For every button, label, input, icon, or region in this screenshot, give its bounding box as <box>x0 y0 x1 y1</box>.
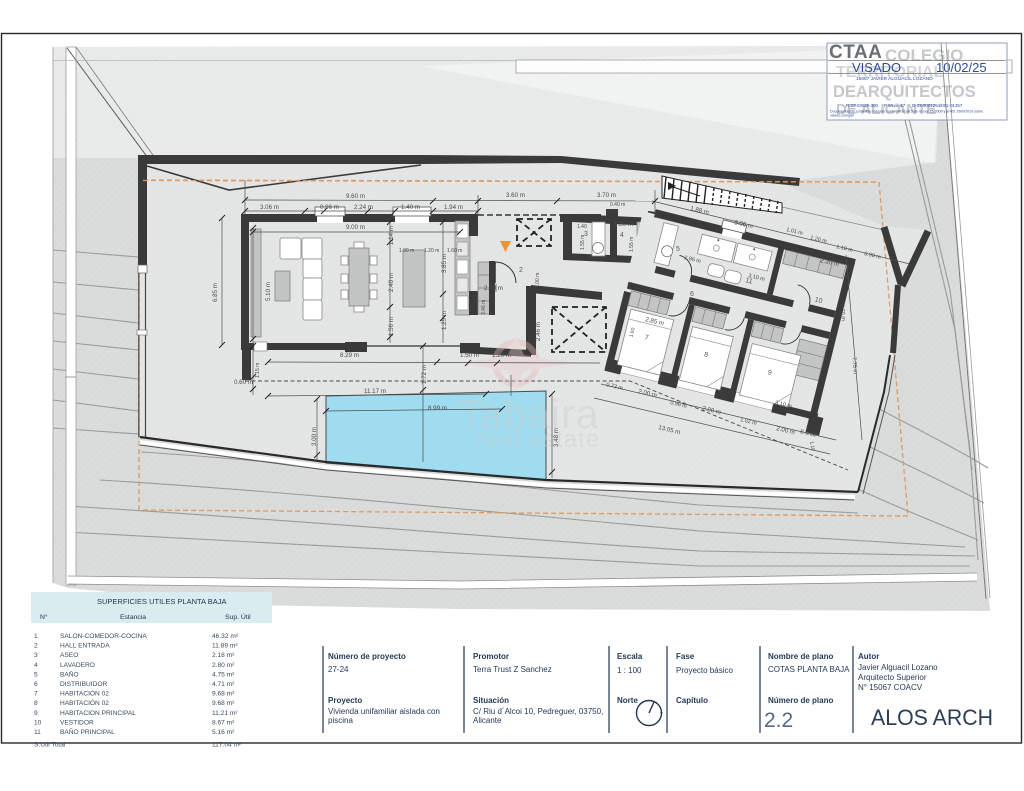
svg-text:N° 15067 COACV: N° 15067 COACV <box>858 683 923 692</box>
svg-text:Capítulo: Capítulo <box>676 696 708 705</box>
svg-text:11: 11 <box>34 729 41 736</box>
svg-text:DEARQUITECTOS: DEARQUITECTOS <box>833 83 976 101</box>
svg-text:8.99 m: 8.99 m <box>428 405 447 412</box>
svg-text:1: 1 <box>34 633 38 640</box>
svg-text:real estate: real estate <box>477 426 600 453</box>
svg-text:3: 3 <box>584 231 588 238</box>
svg-text:Vivienda unifamiliar aislada c: Vivienda unifamiliar aislada con <box>328 707 440 716</box>
svg-text:4: 4 <box>620 232 624 239</box>
svg-text:visado colegial: visado colegial <box>830 114 854 118</box>
svg-text:1.56 m: 1.56 m <box>388 317 395 336</box>
svg-text:8: 8 <box>34 700 38 707</box>
svg-text:11.17 m: 11.17 m <box>364 388 386 395</box>
svg-text:4.71 m²: 4.71 m² <box>212 681 235 688</box>
svg-text:piscina: piscina <box>328 716 353 725</box>
svg-text:9.68 m²: 9.68 m² <box>212 691 235 698</box>
svg-text:Terra Trust Z Sanchez: Terra Trust Z Sanchez <box>473 665 552 674</box>
svg-text:0.60 m: 0.60 m <box>234 379 253 386</box>
svg-text:Situación: Situación <box>473 696 509 705</box>
svg-text:10: 10 <box>34 719 42 726</box>
svg-text:HABITACIÓN 02: HABITACIÓN 02 <box>60 689 109 698</box>
svg-text:Promotor: Promotor <box>473 652 509 661</box>
svg-text:1.80 m: 1.80 m <box>614 221 633 228</box>
svg-text:1.25 m: 1.25 m <box>441 311 448 330</box>
svg-text:3.70 m: 3.70 m <box>597 192 616 199</box>
svg-text:Arquitecto Superior: Arquitecto Superior <box>858 673 927 682</box>
svg-text:2.40 m: 2.40 m <box>388 273 395 292</box>
svg-text:3.00 m: 3.00 m <box>311 427 318 446</box>
svg-text:Proyecto: Proyecto <box>328 696 362 705</box>
svg-text:3.60 m: 3.60 m <box>506 192 525 199</box>
svg-text:3.48 m: 3.48 m <box>553 428 560 447</box>
svg-text:2.46 m: 2.46 m <box>535 322 542 341</box>
svg-text:HABITACIÓN 02: HABITACIÓN 02 <box>60 698 109 707</box>
svg-text:2.24 m: 2.24 m <box>354 204 373 211</box>
svg-text:P 64 de 47: P 64 de 47 <box>884 103 906 108</box>
svg-text:9.60 m: 9.60 m <box>346 193 365 200</box>
svg-text:SALON-COMEDOR-COCINA: SALON-COMEDOR-COCINA <box>60 633 147 640</box>
svg-text:Sup. Útil: Sup. Útil <box>225 612 251 621</box>
svg-text:R-23-03529-300: R-23-03529-300 <box>846 103 879 108</box>
svg-text:1.20 m: 1.20 m <box>424 248 439 254</box>
svg-text:SUPERFICIES UTILES PLANTA BAJA: SUPERFICIES UTILES PLANTA BAJA <box>97 597 226 606</box>
svg-text:6: 6 <box>690 291 694 298</box>
svg-text:Proyecto básico: Proyecto básico <box>676 666 733 675</box>
svg-text:Fase: Fase <box>676 652 695 661</box>
svg-text:2: 2 <box>34 643 38 650</box>
svg-text:1.60 m: 1.60 m <box>447 248 462 254</box>
svg-text:COTAS PLANTA BAJA: COTAS PLANTA BAJA <box>768 665 850 674</box>
svg-text:2.18 m²: 2.18 m² <box>212 652 235 659</box>
svg-text:2.80 m²: 2.80 m² <box>212 662 235 669</box>
svg-text:8.67 m²: 8.67 m² <box>212 719 235 726</box>
svg-text:1.15 m: 1.15 m <box>255 363 261 378</box>
svg-text:C/ Riu d´Alcoi 10, Pedreguer,: C/ Riu d´Alcoi 10, Pedreguer, 03750, <box>473 707 603 716</box>
svg-text:9: 9 <box>34 710 38 717</box>
svg-text:Nombre de plano: Nombre de plano <box>768 652 833 661</box>
svg-text:4.75 m²: 4.75 m² <box>212 671 235 678</box>
svg-text:HABITACION PRINCIPAL: HABITACION PRINCIPAL <box>60 710 136 717</box>
svg-text:11.89 m²: 11.89 m² <box>212 643 238 650</box>
svg-text:1.50 m: 1.50 m <box>460 352 479 359</box>
svg-text:5.16 m²: 5.16 m² <box>212 729 235 736</box>
svg-text:1.55 m: 1.55 m <box>629 237 635 252</box>
svg-text:1.20 m: 1.20 m <box>492 352 511 359</box>
svg-text:ALOS ARCH: ALOS ARCH <box>871 705 993 730</box>
svg-text:3.06 m: 3.06 m <box>260 204 279 211</box>
svg-text:117.04 m²: 117.04 m² <box>212 742 242 749</box>
svg-text:1.72 m: 1.72 m <box>421 365 428 384</box>
svg-text:Número de proyecto: Número de proyecto <box>328 652 406 661</box>
svg-text:1.40 m: 1.40 m <box>401 204 420 211</box>
svg-text:7: 7 <box>34 691 38 698</box>
svg-text:9.00 m: 9.00 m <box>346 224 365 231</box>
svg-text:N°: N° <box>40 613 48 621</box>
svg-text:3.46 m: 3.46 m <box>481 300 487 315</box>
svg-text:3: 3 <box>34 652 38 659</box>
svg-text:D-23-0001264/001-01257: D-23-0001264/001-01257 <box>912 103 963 108</box>
svg-text:46.32 m²: 46.32 m² <box>212 633 239 640</box>
svg-text:5: 5 <box>676 246 680 253</box>
svg-text:1.14 m: 1.14 m <box>388 226 395 245</box>
svg-text:9.68 m²: 9.68 m² <box>212 700 235 707</box>
svg-text:VESTIDOR: VESTIDOR <box>60 719 94 726</box>
svg-text:2.2: 2.2 <box>764 709 793 732</box>
svg-text:11.21 m²: 11.21 m² <box>212 710 238 717</box>
svg-text:Estancia: Estancia <box>120 614 146 621</box>
svg-text:3.85 m: 3.85 m <box>441 254 448 273</box>
svg-text:VISADO: VISADO <box>852 60 901 75</box>
svg-text:0.96 m: 0.96 m <box>320 204 339 211</box>
svg-text:Escala: Escala <box>617 652 643 661</box>
svg-text:1.00 m: 1.00 m <box>535 273 541 288</box>
svg-text:Javier Alguacil Lozano: Javier Alguacil Lozano <box>858 663 938 672</box>
svg-text:1.40: 1.40 <box>577 224 587 230</box>
svg-text:1 : 100: 1 : 100 <box>617 666 642 675</box>
svg-text:1.90 m: 1.90 m <box>399 248 414 254</box>
svg-text:ASEO: ASEO <box>60 652 78 659</box>
svg-text:2.00 m: 2.00 m <box>484 285 503 292</box>
svg-text:15067 JAVIER ALGUACIL LOZANO: 15067 JAVIER ALGUACIL LOZANO <box>856 76 933 82</box>
svg-text:27-24: 27-24 <box>328 665 349 674</box>
svg-text:5.10 m: 5.10 m <box>265 282 272 301</box>
svg-text:DISTRIBUIDOR: DISTRIBUIDOR <box>60 681 107 688</box>
svg-text:Autor: Autor <box>858 652 879 661</box>
svg-text:6: 6 <box>34 681 38 688</box>
svg-text:1.94 m: 1.94 m <box>444 204 463 211</box>
svg-text:BAÑO: BAÑO <box>60 669 79 678</box>
svg-text:BAÑO PRINCIPAL: BAÑO PRINCIPAL <box>60 727 115 736</box>
svg-text:8.29 m: 8.29 m <box>340 352 359 359</box>
svg-text:4: 4 <box>34 662 38 669</box>
svg-text:HALL ENTRADA: HALL ENTRADA <box>60 643 110 650</box>
svg-text:LAVADERO: LAVADERO <box>60 662 95 669</box>
svg-text:Norte: Norte <box>617 696 638 705</box>
svg-text:Número de plano: Número de plano <box>768 696 833 705</box>
svg-text:0.40 m: 0.40 m <box>610 202 625 208</box>
svg-text:5: 5 <box>34 671 38 678</box>
svg-text:6.85 m: 6.85 m <box>212 283 219 302</box>
svg-text:Alicante: Alicante <box>473 716 502 725</box>
svg-text:S.Util Total: S.Util Total <box>34 742 66 749</box>
svg-text:2: 2 <box>519 267 523 274</box>
